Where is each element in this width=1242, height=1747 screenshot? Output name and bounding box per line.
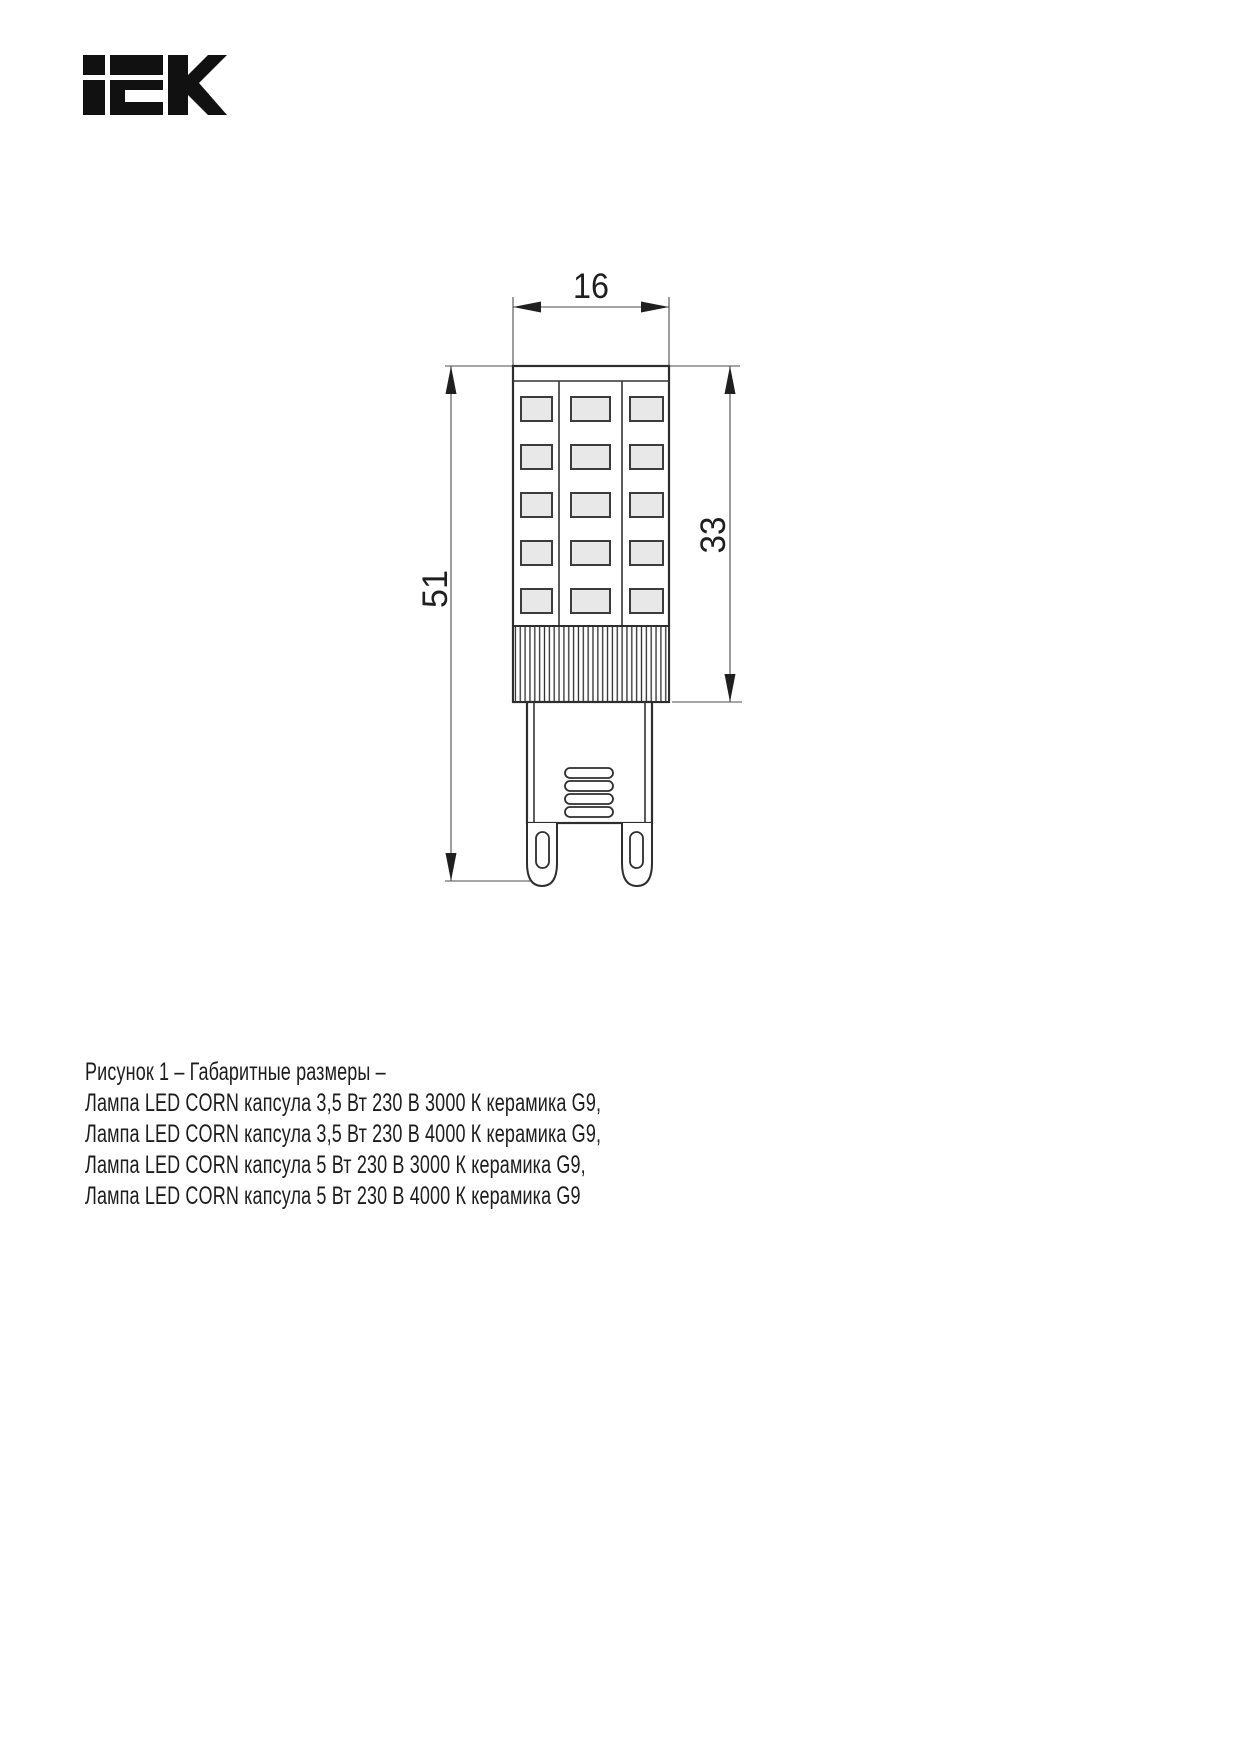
arrow-down-icon (446, 853, 457, 881)
led-chip (571, 397, 610, 421)
led-chip (630, 541, 663, 565)
lamp-base (527, 702, 652, 886)
datasheet-page: 16 51 33 (0, 0, 1242, 1747)
led-chip (630, 493, 663, 517)
arrow-left-icon (513, 302, 541, 313)
vent-slot (565, 781, 613, 791)
dimension-drawing: 16 51 33 (0, 0, 1242, 1747)
caption-line: Лампа LED CORN капсула 5 Вт 230 В 3000 К… (85, 1150, 601, 1181)
led-chip (571, 589, 610, 613)
arrow-up-icon (725, 366, 736, 394)
vent-slot (565, 807, 613, 817)
dimension-body-height: 33 (669, 366, 742, 702)
led-chip (521, 589, 552, 613)
arrow-right-icon (641, 302, 669, 313)
arrow-up-icon (446, 366, 457, 394)
dimension-width-value: 16 (573, 267, 609, 306)
arrow-down-icon (725, 674, 736, 702)
pin-slot (630, 832, 643, 868)
dimension-width: 16 (513, 267, 669, 366)
led-chip (571, 493, 610, 517)
caption-line: Рисунок 1 – Габаритные размеры – (85, 1057, 601, 1088)
dimension-body-height-value: 33 (694, 517, 733, 554)
led-chip (630, 445, 663, 469)
pin-slot (536, 832, 549, 868)
led-chip (521, 493, 552, 517)
figure-caption: Рисунок 1 – Габаритные размеры – Лампа L… (85, 1057, 601, 1212)
heatsink-ribs (513, 626, 669, 702)
led-chip (630, 397, 663, 421)
caption-line: Лампа LED CORN капсула 3,5 Вт 230 В 4000… (85, 1119, 601, 1150)
caption-line: Лампа LED CORN капсула 5 Вт 230 В 4000 К… (85, 1181, 601, 1212)
led-chip (571, 445, 610, 469)
led-chip (571, 541, 610, 565)
dimension-total-height-value: 51 (416, 570, 455, 608)
lamp-body (513, 366, 669, 702)
vent-slot (565, 794, 613, 804)
g9-pins (527, 823, 652, 886)
led-chip (521, 445, 552, 469)
led-chip (521, 541, 552, 565)
led-chip (521, 397, 552, 421)
led-chip (630, 589, 663, 613)
caption-line: Лампа LED CORN капсула 3,5 Вт 230 В 3000… (85, 1088, 601, 1119)
vent-slot (565, 768, 613, 778)
